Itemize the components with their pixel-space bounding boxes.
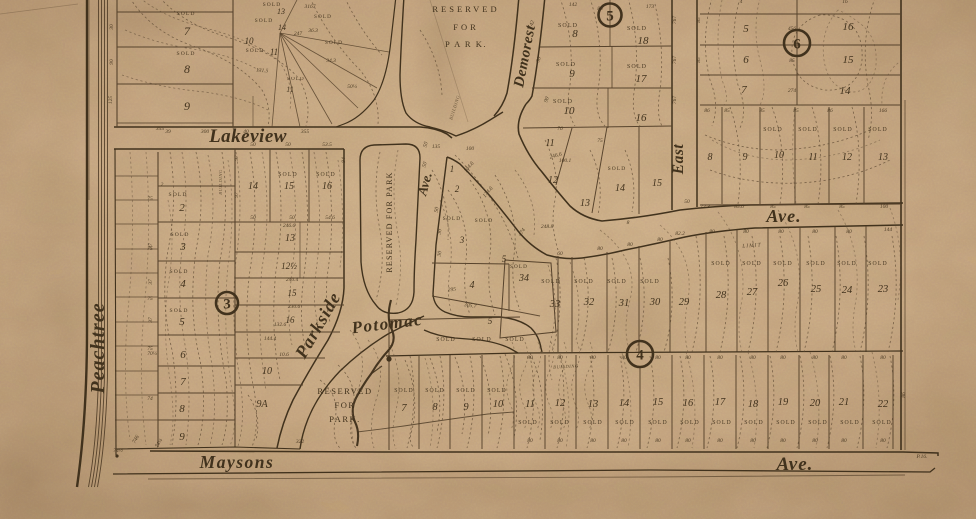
svg-text:90: 90: [109, 59, 115, 65]
svg-text:100: 100: [466, 146, 475, 152]
svg-text:80: 80: [780, 355, 786, 361]
svg-text:8: 8: [708, 152, 713, 163]
svg-text:SOLD: SOLD: [394, 388, 414, 394]
svg-text:2: 2: [455, 184, 460, 194]
svg-text:53.5: 53.5: [322, 142, 332, 148]
svg-text:21: 21: [839, 397, 850, 408]
svg-text:54.6: 54.6: [325, 214, 335, 221]
svg-text:SOLD: SOLD: [773, 261, 793, 267]
svg-text:FOR: FOR: [453, 22, 479, 32]
svg-text:SOLD: SOLD: [763, 127, 783, 133]
svg-text:RESERVED: RESERVED: [317, 386, 372, 396]
svg-text:FOR: FOR: [334, 400, 355, 410]
svg-text:RESERVED FOR PARK: RESERVED FOR PARK: [385, 171, 394, 272]
svg-text:8: 8: [179, 403, 185, 415]
svg-text:29: 29: [679, 297, 690, 308]
svg-text:60: 60: [557, 251, 563, 257]
svg-text:125: 125: [108, 96, 114, 105]
svg-text:SOLD: SOLD: [648, 420, 668, 426]
svg-text:SOLD: SOLD: [510, 264, 528, 270]
svg-text:15: 15: [653, 397, 664, 408]
svg-text:80: 80: [750, 438, 756, 444]
svg-text:SOLD: SOLD: [607, 279, 627, 285]
svg-text:75: 75: [597, 138, 603, 144]
svg-text:85: 85: [793, 108, 799, 114]
svg-text:East: East: [670, 144, 687, 176]
svg-text:20: 20: [810, 398, 821, 409]
svg-text:SOLD: SOLD: [868, 127, 888, 133]
svg-text:15: 15: [843, 54, 855, 66]
svg-text:P A R K.: P A R K.: [445, 39, 487, 49]
svg-text:18: 18: [748, 399, 759, 410]
svg-text:50: 50: [684, 199, 690, 205]
svg-text:80: 80: [685, 355, 691, 361]
svg-text:80: 80: [846, 229, 852, 235]
svg-text:10.6: 10.6: [279, 352, 289, 358]
svg-text:19: 19: [778, 397, 789, 408]
svg-text:295: 295: [448, 287, 457, 294]
svg-text:RESERVED: RESERVED: [432, 4, 499, 14]
svg-text:SOLD: SOLD: [640, 279, 660, 285]
svg-text:9: 9: [179, 431, 185, 443]
svg-text:30: 30: [649, 297, 661, 308]
svg-text:12½: 12½: [281, 261, 297, 271]
svg-text:70¼: 70¼: [147, 351, 157, 357]
svg-text:SOLD: SOLD: [608, 166, 627, 172]
svg-text:7: 7: [741, 84, 747, 96]
svg-text:9: 9: [569, 68, 575, 80]
svg-text:86: 86: [704, 108, 710, 114]
svg-text:37: 37: [148, 243, 154, 250]
svg-text:37: 37: [148, 317, 154, 324]
svg-text:SOLD: SOLD: [169, 308, 188, 314]
svg-text:3: 3: [179, 241, 186, 253]
svg-text:8: 8: [432, 402, 438, 413]
svg-text:5: 5: [179, 316, 185, 328]
svg-text:30: 30: [436, 228, 443, 236]
svg-text:4: 4: [470, 280, 475, 291]
svg-text:13: 13: [580, 198, 590, 209]
svg-text:50: 50: [250, 215, 256, 221]
svg-text:SOLD: SOLD: [176, 11, 195, 17]
svg-text:SOLD: SOLD: [246, 48, 265, 54]
svg-text:16: 16: [842, 0, 848, 5]
svg-text:80: 80: [621, 438, 627, 444]
svg-text:4: 4: [740, 0, 743, 5]
svg-text:80: 80: [621, 355, 627, 361]
svg-text:30: 30: [109, 24, 115, 31]
svg-text:40: 40: [243, 128, 249, 135]
svg-text:Peachtree: Peachtree: [87, 302, 109, 394]
svg-text:34.3: 34.3: [325, 57, 336, 64]
svg-text:11: 11: [286, 85, 293, 94]
svg-text:11: 11: [545, 138, 554, 149]
svg-text:10: 10: [774, 150, 784, 161]
svg-text:9: 9: [743, 152, 748, 163]
svg-text:9: 9: [184, 99, 190, 113]
svg-text:3167: 3167: [304, 4, 316, 10]
svg-text:144.4: 144.4: [264, 335, 277, 342]
svg-text:80: 80: [841, 438, 847, 444]
svg-text:SOLD: SOLD: [425, 388, 445, 394]
svg-text:SOLD: SOLD: [872, 420, 892, 426]
svg-text:767: 767: [672, 96, 678, 105]
svg-text:9A: 9A: [256, 399, 268, 410]
svg-text:80: 80: [812, 355, 818, 361]
svg-text:SOLD: SOLD: [711, 261, 731, 267]
svg-text:80: 80: [709, 229, 715, 235]
svg-text:11: 11: [808, 152, 817, 163]
svg-text:SOLD: SOLD: [712, 420, 732, 426]
svg-text:12: 12: [555, 398, 566, 409]
svg-text:SOLD: SOLD: [583, 420, 603, 426]
svg-text:355: 355: [155, 126, 165, 132]
svg-text:SOLD: SOLD: [472, 337, 492, 343]
svg-text:SOLD: SOLD: [316, 172, 336, 178]
svg-text:16: 16: [636, 112, 648, 124]
svg-text:36.3: 36.3: [307, 28, 318, 34]
svg-text:80: 80: [590, 438, 596, 444]
svg-text:80: 80: [597, 246, 603, 252]
svg-text:BUILDING: BUILDING: [218, 169, 223, 195]
svg-text:247: 247: [294, 30, 303, 37]
svg-text:248.8: 248.8: [541, 223, 554, 230]
svg-text:SOLD: SOLD: [168, 192, 187, 198]
svg-text:85: 85: [770, 204, 776, 210]
svg-text:80: 80: [717, 355, 723, 361]
svg-text:274: 274: [788, 87, 797, 94]
svg-text:80: 80: [812, 229, 818, 235]
svg-text:11: 11: [270, 47, 278, 57]
svg-text:74: 74: [147, 395, 153, 402]
svg-text:85: 85: [696, 17, 702, 23]
svg-text:SOLD: SOLD: [680, 420, 700, 426]
svg-text:3: 3: [223, 297, 231, 313]
svg-text:2: 2: [179, 202, 185, 214]
svg-text:135: 135: [432, 144, 441, 150]
svg-text:50: 50: [285, 142, 291, 148]
svg-text:SOLD: SOLD: [456, 388, 476, 394]
svg-text:80: 80: [657, 237, 663, 243]
svg-text:11: 11: [525, 399, 535, 410]
svg-text:SOLD: SOLD: [314, 14, 332, 20]
svg-text:SOLD: SOLD: [574, 279, 594, 285]
svg-text:14: 14: [619, 398, 630, 409]
svg-text:16: 16: [683, 398, 694, 409]
svg-text:SOLD: SOLD: [475, 218, 494, 224]
svg-text:50: 50: [289, 215, 295, 221]
svg-text:25: 25: [811, 284, 822, 295]
svg-text:6: 6: [793, 37, 801, 53]
svg-text:SOLD: SOLD: [170, 232, 189, 238]
svg-text:31: 31: [618, 298, 630, 309]
svg-text:33: 33: [549, 299, 561, 310]
svg-text:12: 12: [548, 175, 558, 186]
svg-text:14: 14: [248, 181, 258, 192]
svg-text:14: 14: [840, 85, 852, 97]
svg-text:28: 28: [716, 290, 727, 301]
svg-text:80: 80: [880, 438, 886, 444]
svg-text:100.1: 100.1: [559, 158, 572, 164]
svg-text:14: 14: [278, 23, 286, 32]
svg-text:94: 94: [340, 157, 347, 163]
svg-text:85: 85: [759, 108, 765, 114]
svg-text:26: 26: [778, 278, 789, 289]
svg-text:85: 85: [789, 58, 795, 64]
svg-text:80: 80: [780, 438, 786, 444]
svg-text:SOLD: SOLD: [505, 337, 525, 343]
svg-text:80: 80: [717, 438, 723, 444]
svg-text:24: 24: [842, 285, 853, 296]
svg-text:6: 6: [180, 349, 186, 361]
svg-text:PARK.: PARK.: [329, 414, 361, 424]
svg-text:86: 86: [901, 392, 907, 398]
svg-text:85.6: 85.6: [734, 204, 744, 210]
svg-text:4: 4: [180, 278, 186, 290]
svg-text:22: 22: [878, 399, 889, 410]
svg-text:SOLD: SOLD: [443, 216, 462, 222]
svg-text:82.2: 82.2: [675, 231, 685, 237]
svg-text:27: 27: [747, 287, 758, 298]
svg-text:SOLD: SOLD: [806, 261, 826, 267]
svg-text:97: 97: [234, 192, 240, 198]
svg-text:17: 17: [715, 397, 726, 408]
svg-text:85: 85: [804, 204, 810, 210]
svg-text:15: 15: [652, 178, 662, 189]
svg-text:SOLD: SOLD: [868, 261, 888, 267]
svg-text:85: 85: [696, 57, 702, 63]
svg-text:10: 10: [564, 105, 576, 117]
svg-text:80: 80: [527, 438, 533, 444]
svg-text:13: 13: [588, 399, 599, 410]
svg-text:32: 32: [583, 297, 595, 308]
svg-text:SOLD: SOLD: [627, 64, 647, 70]
svg-text:5: 5: [502, 254, 507, 264]
svg-text:SOLD: SOLD: [627, 26, 647, 32]
svg-text:131.5: 131.5: [256, 67, 269, 74]
svg-text:80: 80: [655, 438, 661, 444]
svg-text:14: 14: [615, 183, 625, 194]
svg-text:80: 80: [557, 355, 563, 361]
svg-text:SOLD: SOLD: [744, 420, 764, 426]
svg-text:13: 13: [277, 7, 285, 16]
svg-text:SOLD: SOLD: [840, 420, 860, 426]
svg-text:76: 76: [557, 126, 563, 132]
svg-text:SOLD: SOLD: [541, 279, 561, 285]
svg-text:80: 80: [880, 355, 886, 361]
svg-text:80: 80: [743, 229, 749, 235]
svg-text:322: 322: [295, 439, 305, 445]
svg-text:80: 80: [812, 438, 818, 444]
svg-text:85: 85: [839, 204, 845, 210]
svg-text:85: 85: [724, 108, 730, 114]
svg-text:SOLD: SOLD: [550, 420, 570, 426]
svg-text:767: 767: [672, 16, 678, 25]
svg-text:1: 1: [450, 164, 455, 174]
svg-text:80: 80: [778, 229, 784, 235]
svg-text:SOLD: SOLD: [833, 127, 853, 133]
svg-text:12: 12: [842, 152, 852, 163]
svg-text:SOLD: SOLD: [436, 337, 456, 343]
svg-text:37: 37: [148, 279, 154, 286]
svg-text:80: 80: [655, 355, 661, 361]
svg-text:3: 3: [459, 235, 465, 245]
svg-text:SOLD: SOLD: [278, 172, 298, 178]
svg-text:39: 39: [164, 129, 171, 135]
svg-text:173: 173: [646, 4, 655, 10]
svg-text:SOLD: SOLD: [615, 420, 635, 426]
svg-text:13: 13: [285, 233, 295, 244]
svg-text:SOLD: SOLD: [325, 40, 343, 46]
svg-text:7: 7: [180, 376, 186, 388]
svg-text:SOLD: SOLD: [798, 127, 818, 133]
svg-text:767: 767: [672, 56, 678, 65]
svg-text:10: 10: [262, 366, 272, 377]
svg-text:5: 5: [488, 316, 493, 326]
svg-text:8: 8: [184, 62, 190, 76]
svg-text:5: 5: [743, 23, 749, 35]
svg-text:8: 8: [572, 28, 578, 40]
svg-text:246.6: 246.6: [283, 222, 296, 229]
svg-text:300: 300: [200, 129, 210, 135]
svg-text:86: 86: [827, 108, 833, 114]
svg-text:72.3: 72.3: [700, 204, 710, 210]
svg-text:SOLD: SOLD: [837, 261, 857, 267]
svg-text:9: 9: [463, 402, 469, 413]
svg-text:100: 100: [880, 204, 889, 210]
svg-text:80: 80: [841, 355, 847, 361]
svg-text:80: 80: [685, 438, 691, 444]
svg-text:50¼: 50¼: [347, 84, 357, 90]
svg-text:SOLD: SOLD: [776, 420, 796, 426]
svg-text:16: 16: [322, 181, 332, 192]
svg-text:355: 355: [300, 129, 310, 135]
svg-text:Ave.: Ave.: [776, 454, 814, 475]
svg-text:80: 80: [750, 355, 756, 361]
svg-text:15: 15: [288, 288, 298, 298]
svg-text:80: 80: [527, 355, 533, 361]
svg-text:13: 13: [878, 152, 888, 163]
svg-text:SOLD: SOLD: [808, 420, 828, 426]
svg-text:7: 7: [184, 24, 191, 38]
svg-text:P.16.: P.16.: [916, 454, 928, 460]
svg-text:4: 4: [636, 348, 644, 364]
svg-text:16: 16: [843, 21, 855, 33]
svg-text:132.6: 132.6: [274, 322, 287, 328]
svg-text:30: 30: [436, 250, 443, 258]
svg-text:10: 10: [493, 399, 504, 410]
svg-text:230.6: 230.6: [288, 304, 301, 310]
svg-text:142: 142: [569, 1, 578, 8]
svg-text:75: 75: [147, 296, 153, 302]
svg-text:SOLD: SOLD: [287, 77, 304, 82]
svg-text:74½: 74½: [113, 447, 123, 454]
svg-text:8: 8: [627, 220, 630, 226]
svg-text:Maysons: Maysons: [199, 452, 275, 472]
svg-text:SOLD: SOLD: [742, 261, 762, 267]
svg-text:SOLD: SOLD: [518, 420, 538, 426]
svg-text:97: 97: [234, 155, 240, 161]
svg-text:80: 80: [627, 242, 633, 248]
svg-text:34: 34: [518, 273, 529, 284]
svg-text:456: 456: [788, 25, 797, 32]
svg-text:SOLD: SOLD: [255, 18, 274, 24]
svg-text:10: 10: [245, 36, 255, 46]
svg-text:SOLD: SOLD: [487, 388, 507, 394]
svg-text:7: 7: [401, 403, 407, 414]
svg-text:6: 6: [743, 54, 749, 66]
svg-text:50: 50: [250, 142, 256, 148]
svg-text:SOLD: SOLD: [176, 51, 195, 57]
svg-text:240.4: 240.4: [286, 276, 299, 283]
svg-text:23: 23: [878, 284, 889, 295]
svg-text:2: 2: [161, 182, 164, 188]
svg-text:144: 144: [884, 226, 893, 233]
svg-text:80: 80: [557, 438, 563, 444]
svg-text:5: 5: [606, 9, 614, 25]
svg-text:17: 17: [636, 73, 648, 85]
svg-text:16: 16: [286, 315, 296, 325]
svg-text:15: 15: [284, 181, 294, 192]
svg-text:80: 80: [590, 355, 596, 361]
svg-text:SOLD: SOLD: [169, 269, 188, 275]
svg-text:18: 18: [638, 35, 650, 47]
svg-text:166: 166: [879, 108, 888, 114]
